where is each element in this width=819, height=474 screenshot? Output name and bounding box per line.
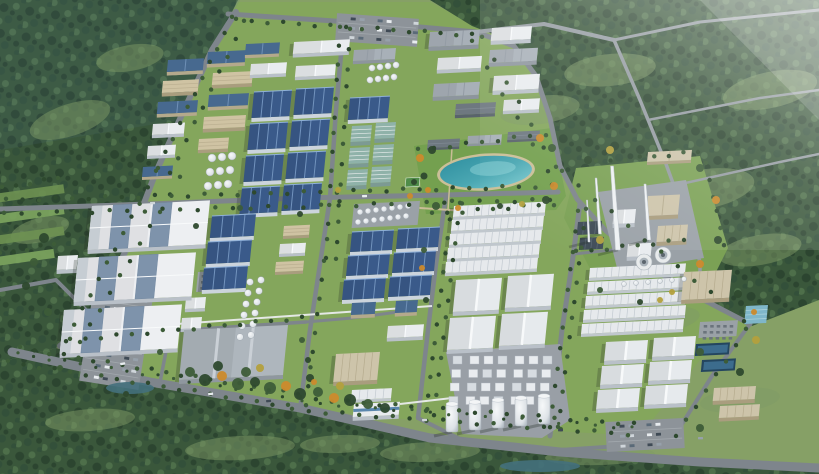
haze-overlay [480, 0, 819, 250]
industrial-park-aerial-render: Bird's-eye 3D rendering of a large indus… [0, 0, 819, 474]
pond [500, 460, 580, 472]
aerial-scene-canvas: Bird's-eye 3D rendering of a large indus… [0, 0, 819, 474]
